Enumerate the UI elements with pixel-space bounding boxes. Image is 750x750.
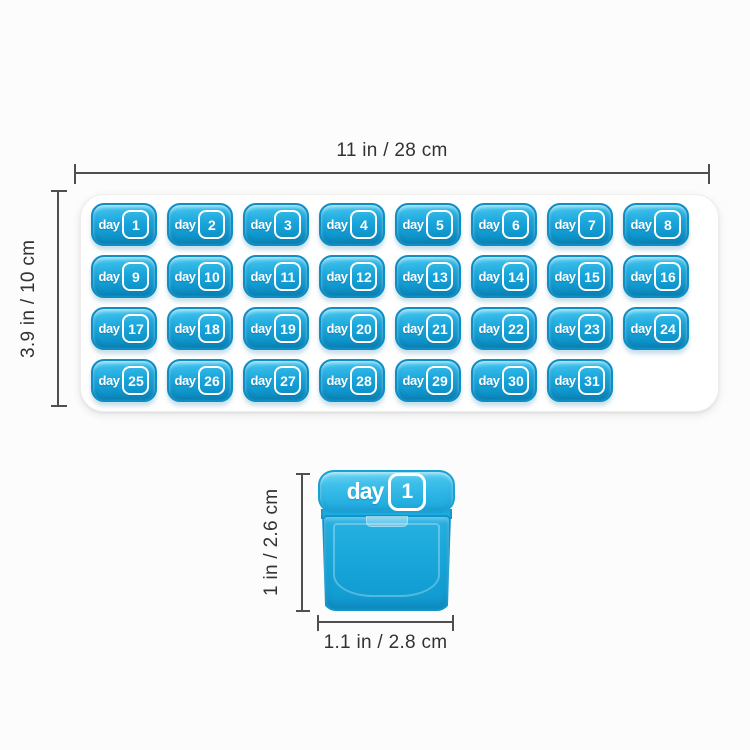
pill-pod: day 7 — [547, 203, 613, 246]
pod-day-number: 13 — [426, 262, 453, 291]
pill-pod: day 8 — [623, 203, 689, 246]
pod-day-number: 1 — [122, 210, 149, 239]
tray-width-dimension-line — [74, 172, 710, 174]
pod-day-label: day — [251, 218, 272, 231]
pod-day-number: 26 — [198, 366, 225, 395]
single-pod-inner-cup — [333, 523, 440, 597]
pod-day-label: day — [403, 322, 424, 335]
pod-day-number: 29 — [426, 366, 453, 395]
pill-pod: day 1 — [91, 203, 157, 246]
pill-pod: day 14 — [471, 255, 537, 298]
pod-day-number: 16 — [654, 262, 681, 291]
pill-pod: day 15 — [547, 255, 613, 298]
pill-pod: day 6 — [471, 203, 537, 246]
pod-day-number: 17 — [122, 314, 149, 343]
pod-day-number: 11 — [274, 262, 301, 291]
pod-day-label: day — [327, 218, 348, 231]
pod-day-number: 19 — [274, 314, 301, 343]
pod-day-number: 22 — [502, 314, 529, 343]
pod-height-dimension-label: 1 in / 2.6 cm — [258, 473, 286, 612]
single-pod-day-number: 1 — [388, 473, 426, 511]
pod-day-number: 23 — [578, 314, 605, 343]
pod-day-label: day — [631, 270, 652, 283]
single-pod-body — [322, 515, 451, 611]
pod-day-label: day — [479, 218, 500, 231]
pod-day-number: 2 — [198, 210, 225, 239]
pill-pod: day 29 — [395, 359, 461, 402]
pod-day-label: day — [251, 322, 272, 335]
tray-height-dimension-line — [57, 190, 59, 407]
pill-pod: day 31 — [547, 359, 613, 402]
pod-day-label: day — [479, 270, 500, 283]
pod-day-number: 28 — [350, 366, 377, 395]
pod-day-label: day — [479, 322, 500, 335]
pod-day-number: 18 — [198, 314, 225, 343]
tray-width-dimension-label: 11 in / 28 cm — [74, 140, 710, 162]
pod-day-number: 25 — [122, 366, 149, 395]
pod-day-number: 15 — [578, 262, 605, 291]
pill-pod: day 2 — [167, 203, 233, 246]
pill-pod: day 24 — [623, 307, 689, 350]
pill-pod: day 28 — [319, 359, 385, 402]
pod-day-label: day — [99, 374, 120, 387]
pill-pod: day 21 — [395, 307, 461, 350]
pill-pod: day 11 — [243, 255, 309, 298]
pod-day-number: 3 — [274, 210, 301, 239]
pod-day-number: 21 — [426, 314, 453, 343]
pod-day-number: 8 — [654, 210, 681, 239]
pod-day-label: day — [631, 218, 652, 231]
pill-pod: day 4 — [319, 203, 385, 246]
pod-day-label: day — [99, 218, 120, 231]
pill-pod: day 9 — [91, 255, 157, 298]
single-pod-lid: day 1 — [318, 470, 455, 513]
pod-day-label: day — [555, 374, 576, 387]
pill-pod: day 16 — [623, 255, 689, 298]
pod-day-label: day — [99, 322, 120, 335]
pill-pod: day 27 — [243, 359, 309, 402]
pod-day-number: 31 — [578, 366, 605, 395]
pod-width-dimension-line — [317, 621, 454, 623]
pill-pod: day 19 — [243, 307, 309, 350]
pod-day-number: 6 — [502, 210, 529, 239]
pod-width-dimension-label: 1.1 in / 2.8 cm — [287, 632, 484, 654]
pill-pod: day 30 — [471, 359, 537, 402]
pill-pod: day 5 — [395, 203, 461, 246]
tray-height-dimension-label: 3.9 in / 10 cm — [16, 190, 42, 407]
pod-day-label: day — [631, 322, 652, 335]
pod-day-label: day — [175, 322, 196, 335]
pod-day-label: day — [251, 270, 272, 283]
pill-pod: day 20 — [319, 307, 385, 350]
pod-height-dimension-line — [301, 473, 303, 612]
pod-day-label: day — [555, 322, 576, 335]
pod-day-number: 10 — [198, 262, 225, 291]
pill-pod: day 25 — [91, 359, 157, 402]
pill-pod: day 13 — [395, 255, 461, 298]
pod-day-label: day — [99, 270, 120, 283]
pod-day-label: day — [251, 374, 272, 387]
pod-day-label: day — [327, 270, 348, 283]
pill-pod: day 10 — [167, 255, 233, 298]
pod-day-label: day — [555, 270, 576, 283]
pod-grid: day 1 day 2 day 3 day 4 day 5 day 6 day … — [91, 203, 689, 402]
pod-day-number: 14 — [502, 262, 529, 291]
pod-day-label: day — [175, 218, 196, 231]
pill-pod: day 17 — [91, 307, 157, 350]
single-pod-day-label: day — [347, 478, 384, 505]
pod-day-label: day — [403, 374, 424, 387]
pod-day-number: 20 — [350, 314, 377, 343]
pod-day-number: 9 — [122, 262, 149, 291]
pod-day-number: 24 — [654, 314, 681, 343]
pod-day-number: 5 — [426, 210, 453, 239]
pod-day-label: day — [175, 374, 196, 387]
pod-day-number: 12 — [350, 262, 377, 291]
pill-pod: day 3 — [243, 203, 309, 246]
pod-day-number: 30 — [502, 366, 529, 395]
pill-pod: day 26 — [167, 359, 233, 402]
pod-day-label: day — [479, 374, 500, 387]
pill-pod: day 23 — [547, 307, 613, 350]
pod-day-label: day — [327, 374, 348, 387]
pod-day-number: 27 — [274, 366, 301, 395]
pill-organizer-tray: day 1 day 2 day 3 day 4 day 5 day 6 day … — [80, 194, 719, 412]
pod-day-number: 7 — [578, 210, 605, 239]
pill-pod: day 18 — [167, 307, 233, 350]
pill-pod: day 22 — [471, 307, 537, 350]
pod-day-label: day — [403, 270, 424, 283]
pod-day-label: day — [175, 270, 196, 283]
product-dimension-figure: 11 in / 28 cm 3.9 in / 10 cm day 1 day 2… — [0, 0, 750, 750]
pod-day-label: day — [327, 322, 348, 335]
pill-pod: day 12 — [319, 255, 385, 298]
pod-day-label: day — [555, 218, 576, 231]
pod-day-label: day — [403, 218, 424, 231]
pod-day-number: 4 — [350, 210, 377, 239]
